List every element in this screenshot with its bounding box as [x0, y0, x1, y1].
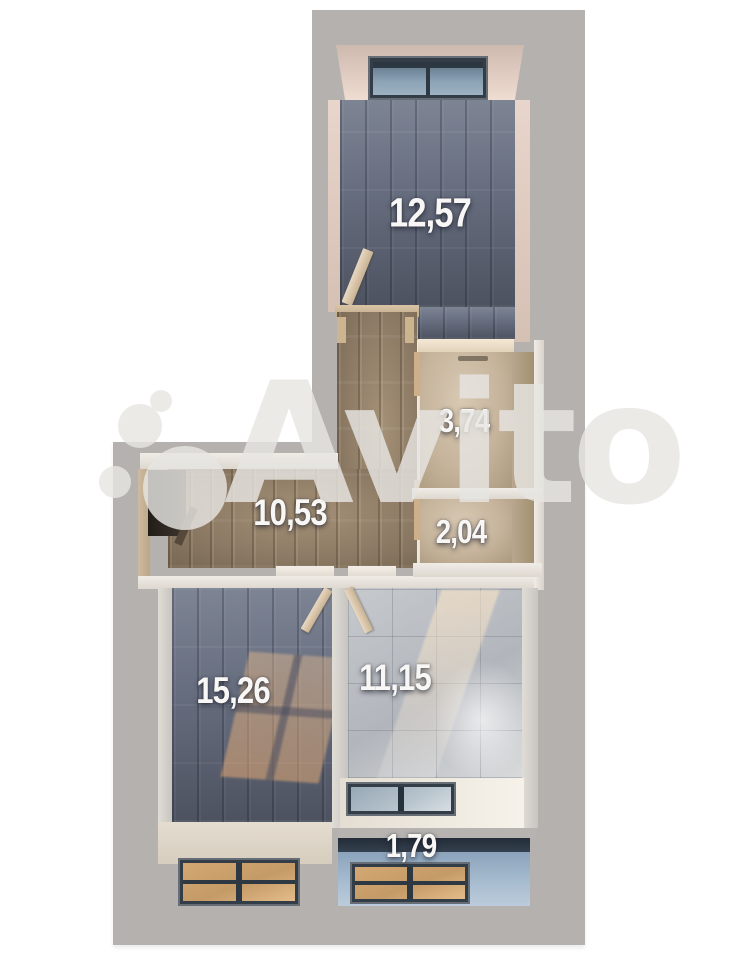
balcony-window	[350, 862, 470, 904]
bedroom-floor-step	[418, 307, 515, 339]
balcony-divider-wall	[338, 828, 536, 838]
floor-plan-image: 12,57 10,53 3,74 2,04 15,26 11,15	[0, 0, 739, 960]
window-glass	[183, 863, 295, 901]
window-glass	[351, 787, 451, 811]
room-area-label: 1,79	[386, 827, 437, 865]
room-area-label: 12,57	[389, 190, 471, 237]
bedroom-window	[368, 56, 488, 100]
wc-bottom-wall	[413, 563, 542, 577]
living-left-wall	[158, 588, 172, 824]
watermark-logo-dot-icon	[99, 466, 131, 498]
room-area-label: 11,15	[359, 657, 431, 699]
hallway-door-post	[405, 317, 414, 343]
sunlight-bright-patch	[432, 660, 532, 780]
kitchen-right-wall	[522, 588, 538, 828]
hallway-door-post	[337, 317, 346, 343]
watermark-logo-dot-icon	[143, 446, 227, 530]
window-glass	[373, 62, 483, 95]
window-glass	[355, 867, 465, 899]
watermark-logo-dot-icon	[150, 390, 172, 412]
room-area-label: 15,26	[196, 670, 270, 712]
watermark-brand-text: Avito	[224, 360, 681, 528]
kitchen-window	[346, 782, 456, 816]
bedroom-right-wall	[514, 100, 530, 342]
living-window	[178, 858, 300, 906]
